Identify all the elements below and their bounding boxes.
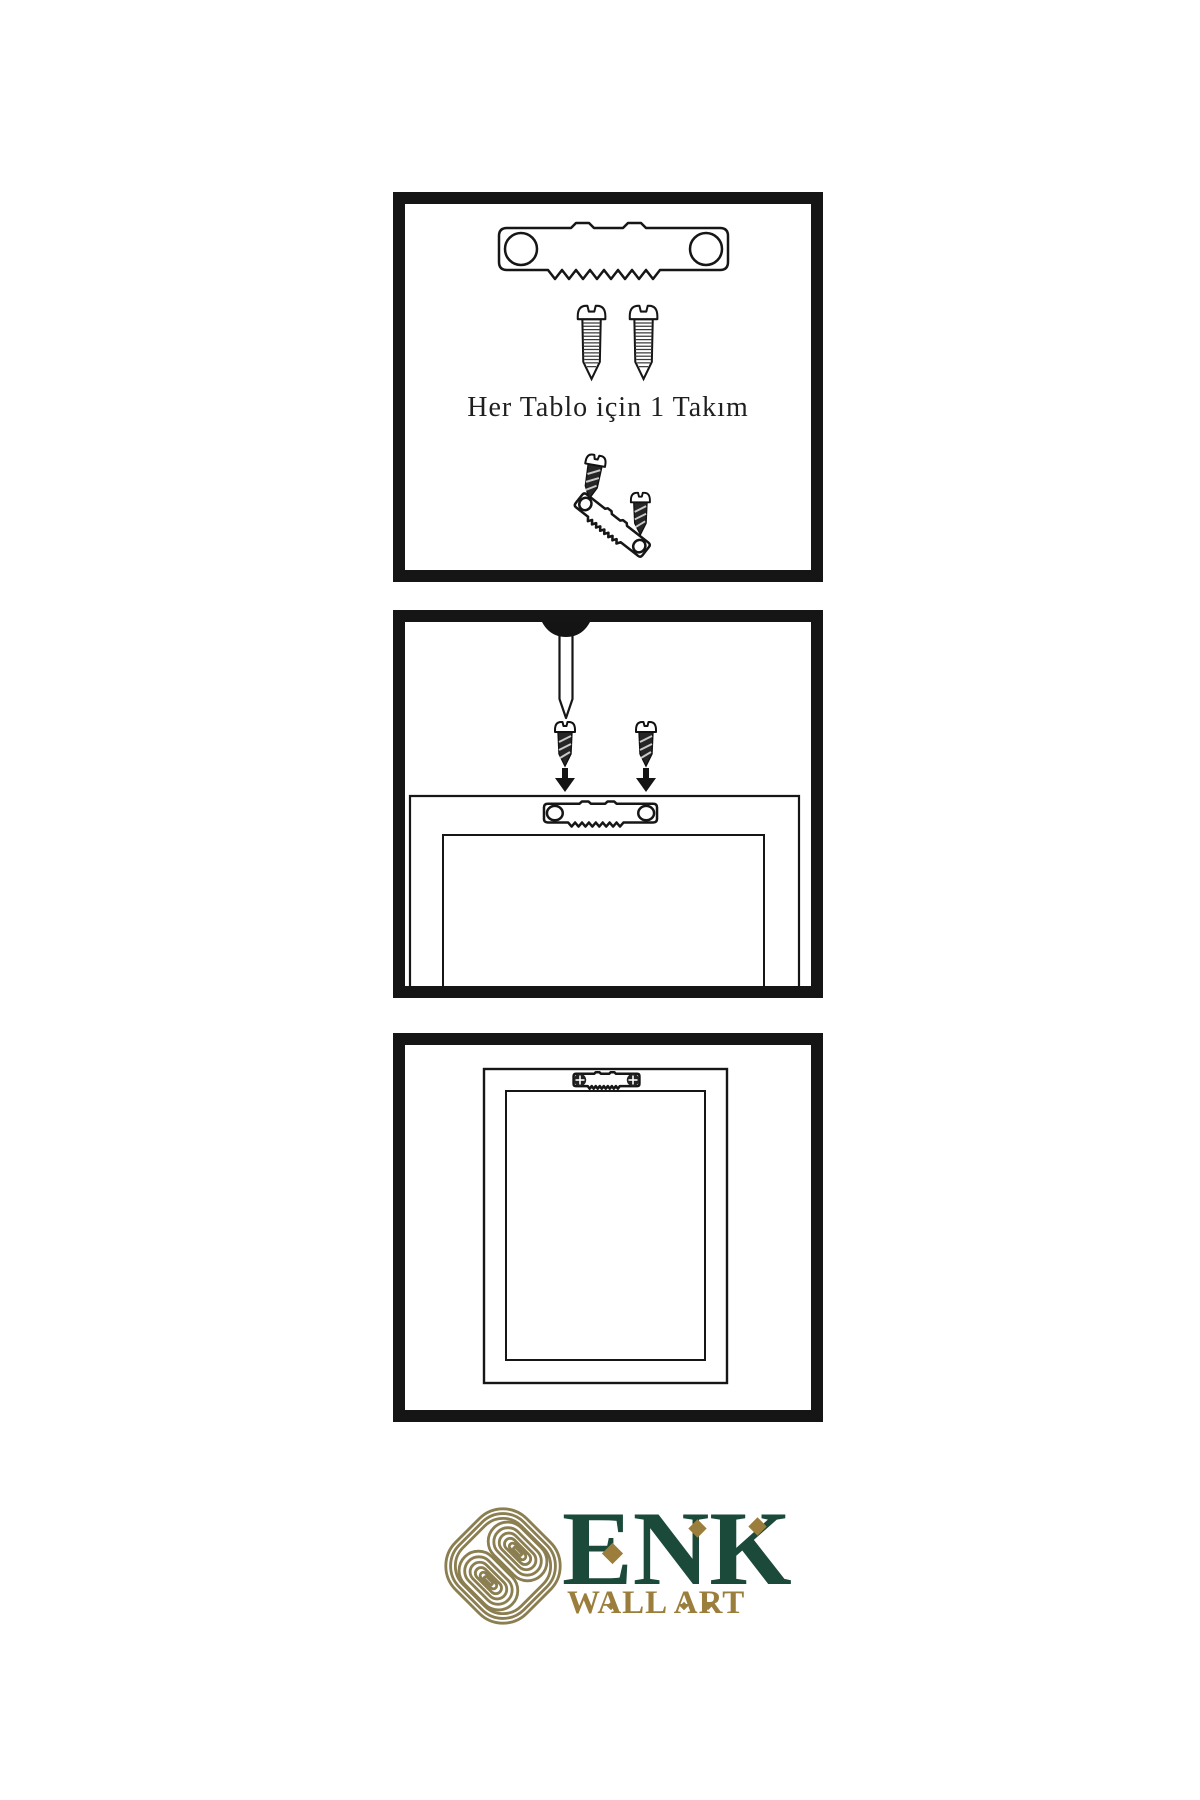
instruction-text: Her Tablo için 1 Takım [405,392,811,424]
brand-tagline: WALL ART [567,1587,745,1620]
installation-step-panel [393,610,823,998]
hardware-kit-panel [393,192,823,582]
brand-logo: ENK WALL ART [438,1496,798,1646]
instruction-sheet: Her Tablo için 1 Takım [0,0,1200,1800]
mounted-frame-panel [393,1033,823,1422]
knot-icon [438,1499,568,1633]
